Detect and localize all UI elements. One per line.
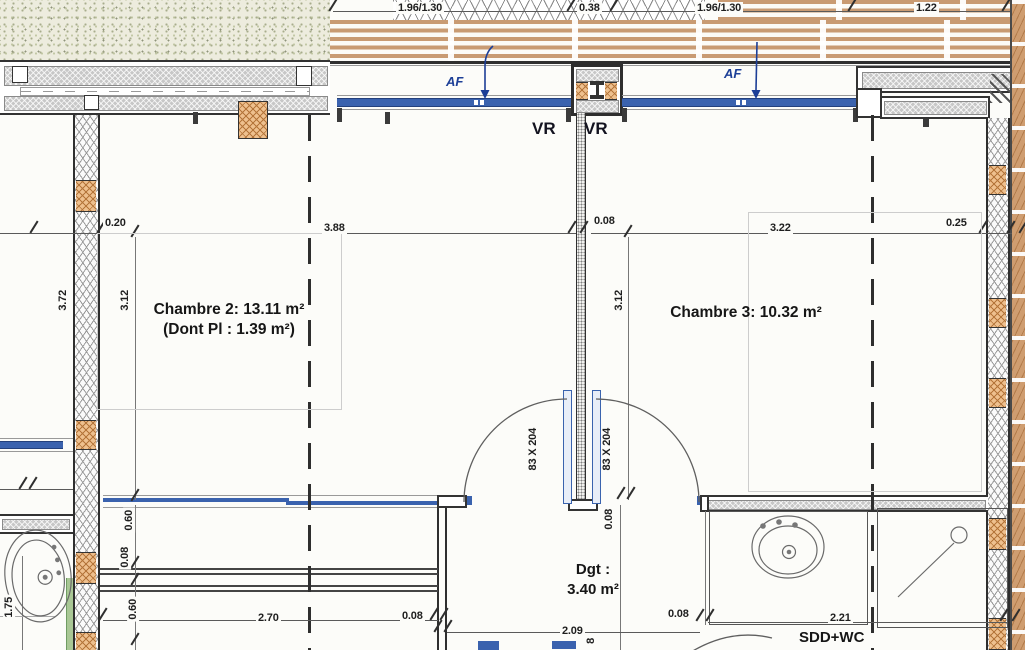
ground-gravel-hatch xyxy=(0,0,330,60)
wood-block xyxy=(989,378,1006,408)
room-label-chambre2: Chambre 2: 13.11 m² (Dont Pl : 1.39 m²) xyxy=(113,300,345,340)
central-post xyxy=(571,64,623,116)
zone-outline-chambre3 xyxy=(748,212,982,492)
dim-line-left-room xyxy=(0,489,73,490)
window-left-room xyxy=(0,441,63,449)
door-leaf-chambre2 xyxy=(563,390,572,504)
corridor-wall xyxy=(100,585,438,587)
wood-block xyxy=(989,165,1006,195)
window-sill-line xyxy=(0,451,73,452)
dim-wall-025: 0.25 xyxy=(944,217,969,229)
steel-ibeam-icon xyxy=(590,81,604,99)
door-swing-chambre2 xyxy=(464,399,567,502)
dim-bathroom-221: 2.21 xyxy=(828,612,853,624)
dim-tick xyxy=(28,477,37,490)
window-sill-line xyxy=(337,109,571,110)
exterior-cladding xyxy=(1010,0,1025,650)
ibeam-web xyxy=(596,85,599,95)
dim-tick xyxy=(616,487,625,500)
sink-drain xyxy=(37,570,52,585)
chambre2-title: Chambre 2: 13.11 m² xyxy=(113,300,345,320)
vr-label-right: VR xyxy=(584,119,608,139)
dim-top-right: 1.22 xyxy=(914,2,939,14)
dim-wall-left-372: 3.72 xyxy=(57,288,69,313)
window-joint xyxy=(474,100,478,105)
faucet-dot xyxy=(56,570,61,575)
door-size-right: 83 X 204 xyxy=(601,426,613,472)
closet-wall xyxy=(100,573,438,575)
faucet-dot xyxy=(55,557,60,562)
dim-cut-off: 8 xyxy=(585,636,597,646)
post-insulation xyxy=(576,100,619,113)
window-sill-line xyxy=(337,95,571,96)
door-size-left: 83 X 204 xyxy=(527,426,539,472)
bathroom-wall-end xyxy=(700,495,709,512)
dim-tick xyxy=(18,477,27,490)
faucet-dot xyxy=(51,545,56,550)
dim-tick xyxy=(695,609,704,622)
corridor-wall xyxy=(100,590,438,592)
wall-air-gap xyxy=(20,87,310,96)
wall-stud xyxy=(12,66,28,83)
dim-corridor-270: 2.70 xyxy=(256,612,281,624)
window-joint xyxy=(480,100,484,105)
placard-track xyxy=(103,507,463,508)
window-jamb xyxy=(622,108,627,122)
wall-insulation-band xyxy=(4,96,328,111)
wall-insulation-band xyxy=(884,101,987,115)
dim-top-window-right: 1.96/1.30 xyxy=(695,2,743,14)
shower-tray xyxy=(877,508,1008,628)
window-joint xyxy=(736,100,740,105)
wall-insulation-band xyxy=(2,519,70,530)
door-jamb-stub xyxy=(437,495,467,508)
wall-insulation-band xyxy=(4,66,328,86)
window-jamb xyxy=(566,108,571,122)
window-chambre2 xyxy=(337,98,571,107)
partition-wall-central xyxy=(576,113,586,510)
room-label-dgt: Dgt : 3.40 m² xyxy=(548,560,638,599)
chambre2-subtitle: (Dont Pl : 1.39 m²) xyxy=(113,320,345,340)
dim-wall-008-a: 0.08 xyxy=(400,610,425,622)
wall-stud-mark xyxy=(193,112,198,124)
dim-top-window-left: 1.96/1.30 xyxy=(396,2,444,14)
deck-edge-line xyxy=(330,61,1025,64)
wood-block xyxy=(76,420,96,450)
window-joint xyxy=(742,100,746,105)
door-frame-mark xyxy=(552,641,576,649)
window-sill-line xyxy=(0,438,73,439)
wood-deck-boards xyxy=(330,20,1025,62)
dim-closet-depth: 0.60 xyxy=(123,508,135,533)
dim-tick xyxy=(29,221,38,234)
dim-room-height-right: 3.12 xyxy=(613,288,625,313)
wall-stud xyxy=(84,95,99,110)
dim-closet-wall: 0.08 xyxy=(119,545,131,570)
window-jamb xyxy=(337,108,342,122)
dim-wall-020: 0.20 xyxy=(103,217,128,229)
sink-bowl-inner xyxy=(8,537,68,618)
vanity-edge xyxy=(705,511,706,625)
placard-track xyxy=(103,495,463,496)
dim-door-wall-008: 0.08 xyxy=(603,507,615,532)
dim-left-outer: 1.75 xyxy=(3,595,15,620)
closet-wall xyxy=(100,568,438,570)
dim-partition-008: 0.08 xyxy=(592,215,617,227)
dim-wall-008-b: 0.08 xyxy=(666,608,691,620)
af-label-right: AF xyxy=(724,66,741,81)
door-leaf-chambre3 xyxy=(592,390,601,504)
room-label-sdd-wc: SDD+WC xyxy=(799,628,864,648)
dim-chambre2-width: 3.88 xyxy=(322,222,347,234)
wood-block xyxy=(76,552,96,584)
wood-deck-boards xyxy=(718,0,1025,20)
door-swing-bathroom xyxy=(691,635,772,650)
wood-post xyxy=(238,101,268,139)
dgt-title: Dgt : xyxy=(548,560,638,580)
wood-block xyxy=(989,298,1006,328)
dim-line-bathroom xyxy=(708,622,1008,623)
window-sill-line xyxy=(622,95,858,96)
room-label-chambre3: Chambre 3: 10.32 m² xyxy=(650,303,842,323)
wood-block xyxy=(76,180,96,212)
dim-top-post: 0.38 xyxy=(577,2,602,14)
door-leaf-green xyxy=(66,578,73,650)
af-label-left: AF xyxy=(446,74,463,89)
dgt-area: 3.40 m² xyxy=(548,580,638,600)
sink-drain-dot xyxy=(42,575,47,580)
wall-left-room xyxy=(0,514,73,534)
window-chambre3 xyxy=(622,98,858,107)
window-sill-line xyxy=(622,109,858,110)
dim-closet-depth-2: 0.60 xyxy=(127,597,139,622)
vr-label-left: VR xyxy=(532,119,556,139)
post-wood-block xyxy=(605,82,617,100)
wall-left-exterior xyxy=(73,115,100,650)
dim-tick xyxy=(623,225,632,238)
dim-extension xyxy=(22,556,23,650)
dim-dgt-209: 2.09 xyxy=(560,625,585,637)
corner-post xyxy=(856,88,882,118)
wall-stud xyxy=(296,66,312,86)
dim-chambre3-width: 3.22 xyxy=(768,222,793,234)
vanity-counter xyxy=(709,511,868,625)
dim-extension xyxy=(628,237,629,500)
wood-block xyxy=(76,632,96,650)
wall-stud-mark xyxy=(385,112,390,124)
post-wood-block xyxy=(576,82,588,100)
floor-plan: 1.96/1.30 0.38 1.96/1.30 1.22 AF AF VR V… xyxy=(0,0,1025,650)
door-frame-mark xyxy=(478,641,499,650)
